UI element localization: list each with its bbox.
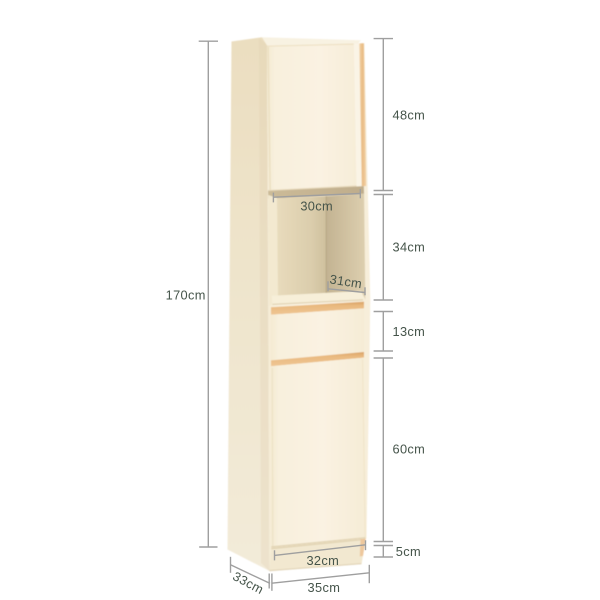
svg-text:30cm: 30cm [300,198,333,213]
svg-text:35cm: 35cm [308,580,341,595]
svg-text:60cm: 60cm [393,442,426,457]
svg-text:32cm: 32cm [306,553,339,568]
svg-text:5cm: 5cm [396,544,421,559]
svg-text:34cm: 34cm [393,240,426,255]
svg-text:13cm: 13cm [393,324,426,339]
svg-text:170cm: 170cm [166,288,206,303]
svg-text:48cm: 48cm [393,108,426,123]
